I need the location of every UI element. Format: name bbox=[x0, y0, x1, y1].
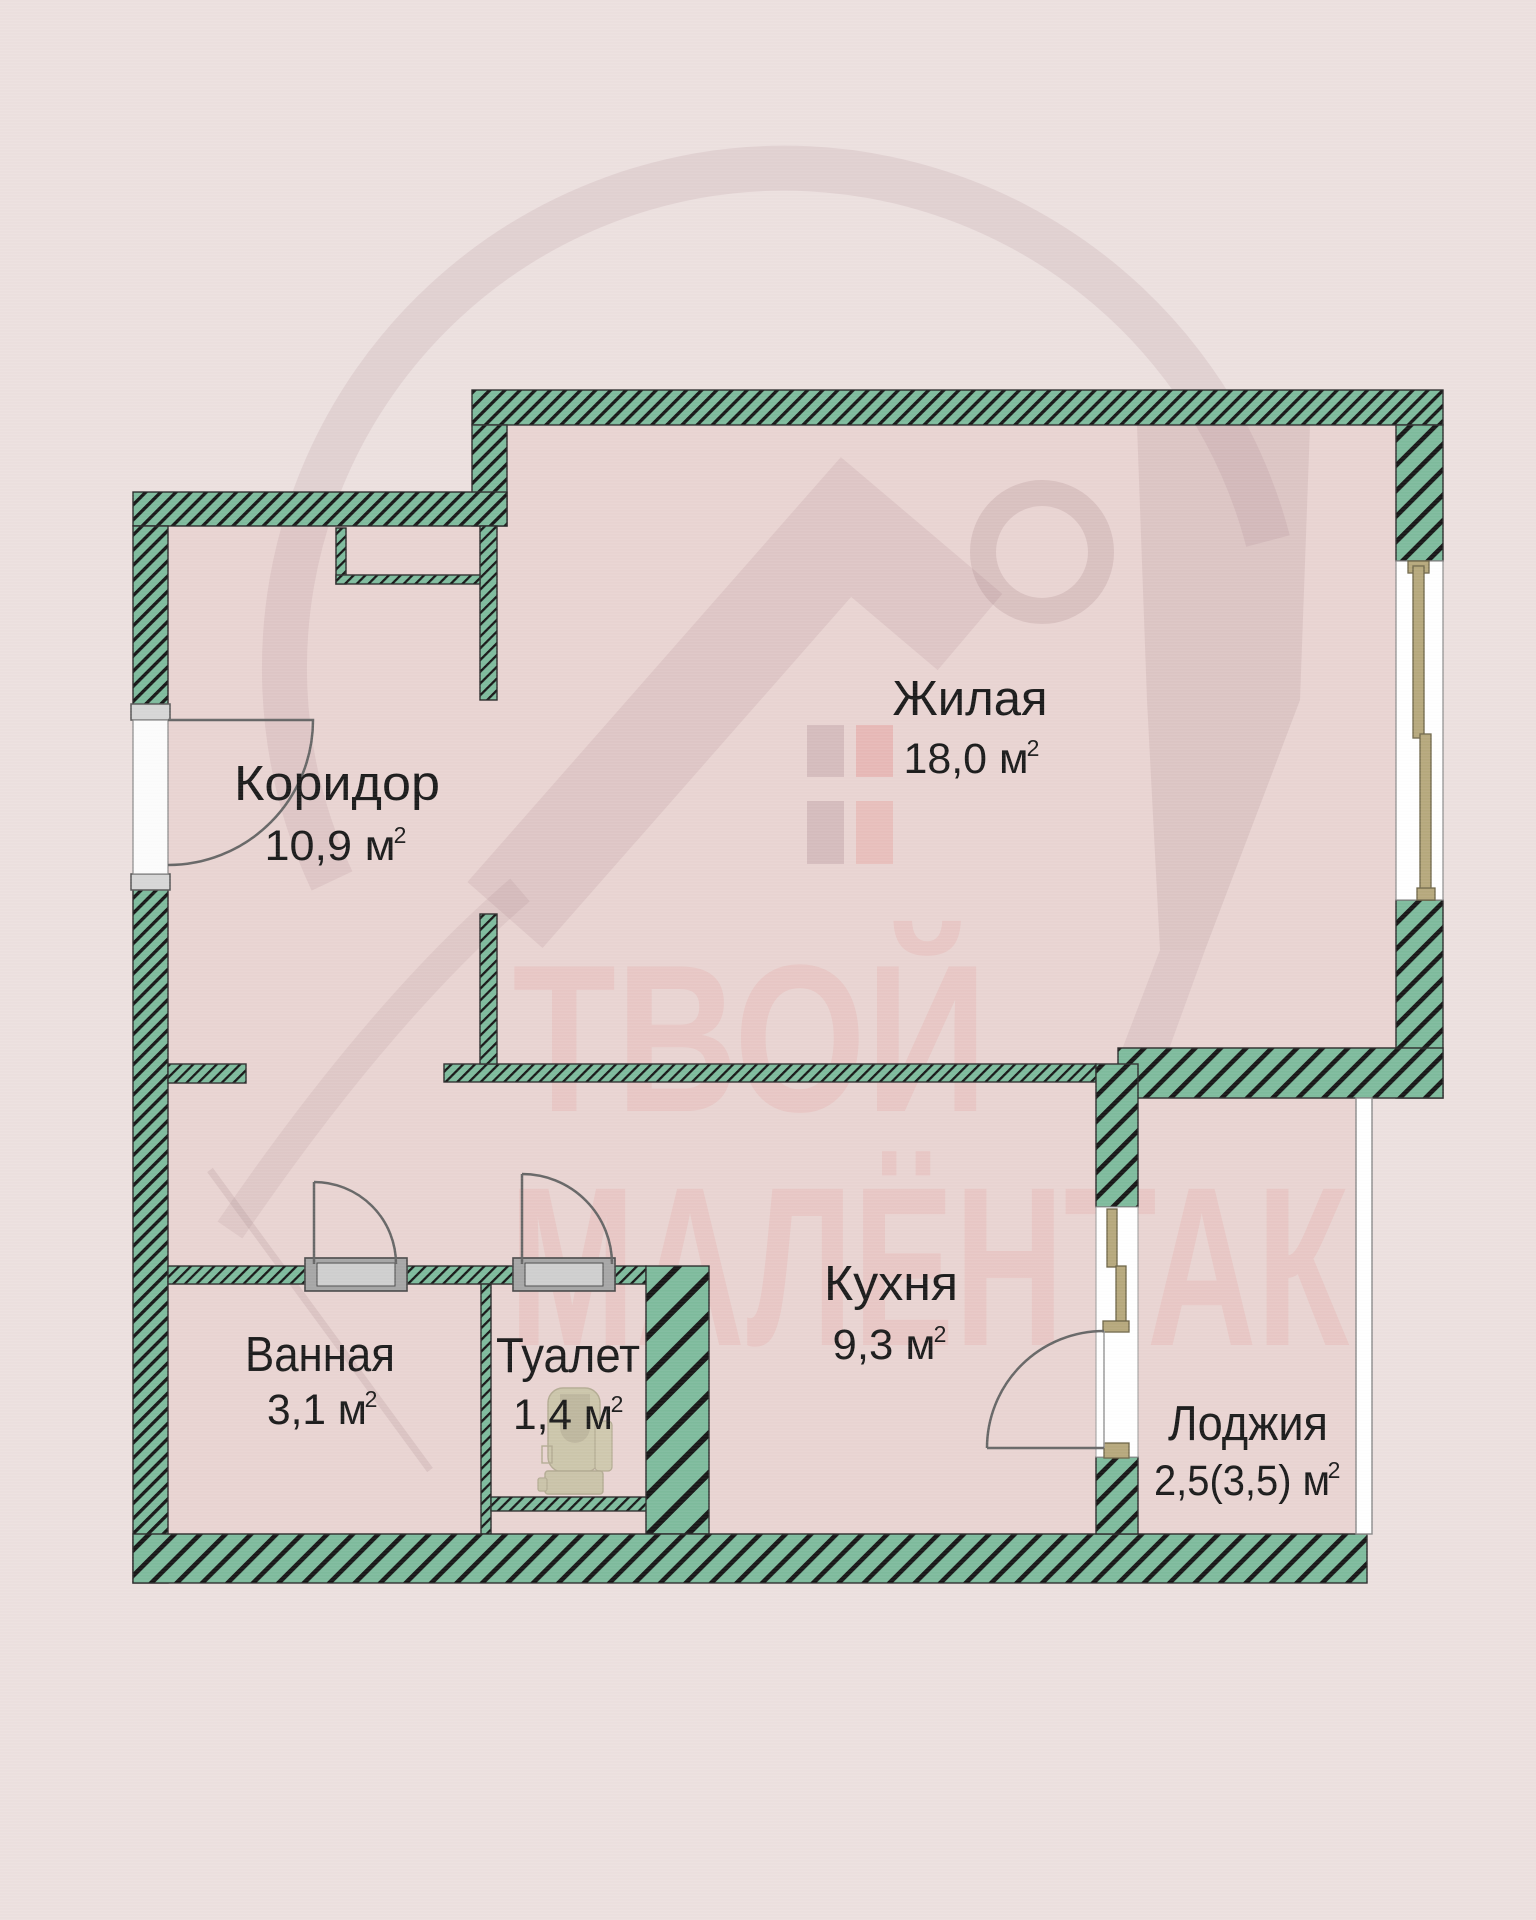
svg-text:Жилая: Жилая bbox=[893, 672, 1048, 726]
svg-text:Туалет: Туалет bbox=[496, 1329, 640, 1383]
svg-text:2: 2 bbox=[365, 1386, 378, 1412]
svg-text:Ванная: Ванная bbox=[245, 1328, 395, 1382]
svg-text:2: 2 bbox=[1027, 735, 1040, 761]
svg-text:2: 2 bbox=[611, 1391, 624, 1417]
svg-text:Коридор: Коридор bbox=[234, 757, 440, 811]
svg-text:10,9 м: 10,9 м bbox=[265, 822, 396, 870]
svg-text:1,4 м: 1,4 м bbox=[513, 1391, 613, 1439]
svg-text:ТВОЙ: ТВОЙ bbox=[513, 921, 988, 1156]
svg-text:Кухня: Кухня bbox=[824, 1257, 958, 1311]
svg-text:3,1 м: 3,1 м bbox=[267, 1386, 367, 1434]
svg-text:Лоджия: Лоджия bbox=[1168, 1397, 1328, 1451]
svg-text:2: 2 bbox=[934, 1321, 947, 1347]
svg-text:9,3 м: 9,3 м bbox=[833, 1321, 936, 1369]
svg-text:18,0 м: 18,0 м bbox=[904, 735, 1029, 783]
svg-text:2: 2 bbox=[394, 822, 407, 848]
svg-text:2,5(3,5) м: 2,5(3,5) м bbox=[1154, 1457, 1330, 1505]
svg-text:2: 2 bbox=[1328, 1457, 1341, 1483]
